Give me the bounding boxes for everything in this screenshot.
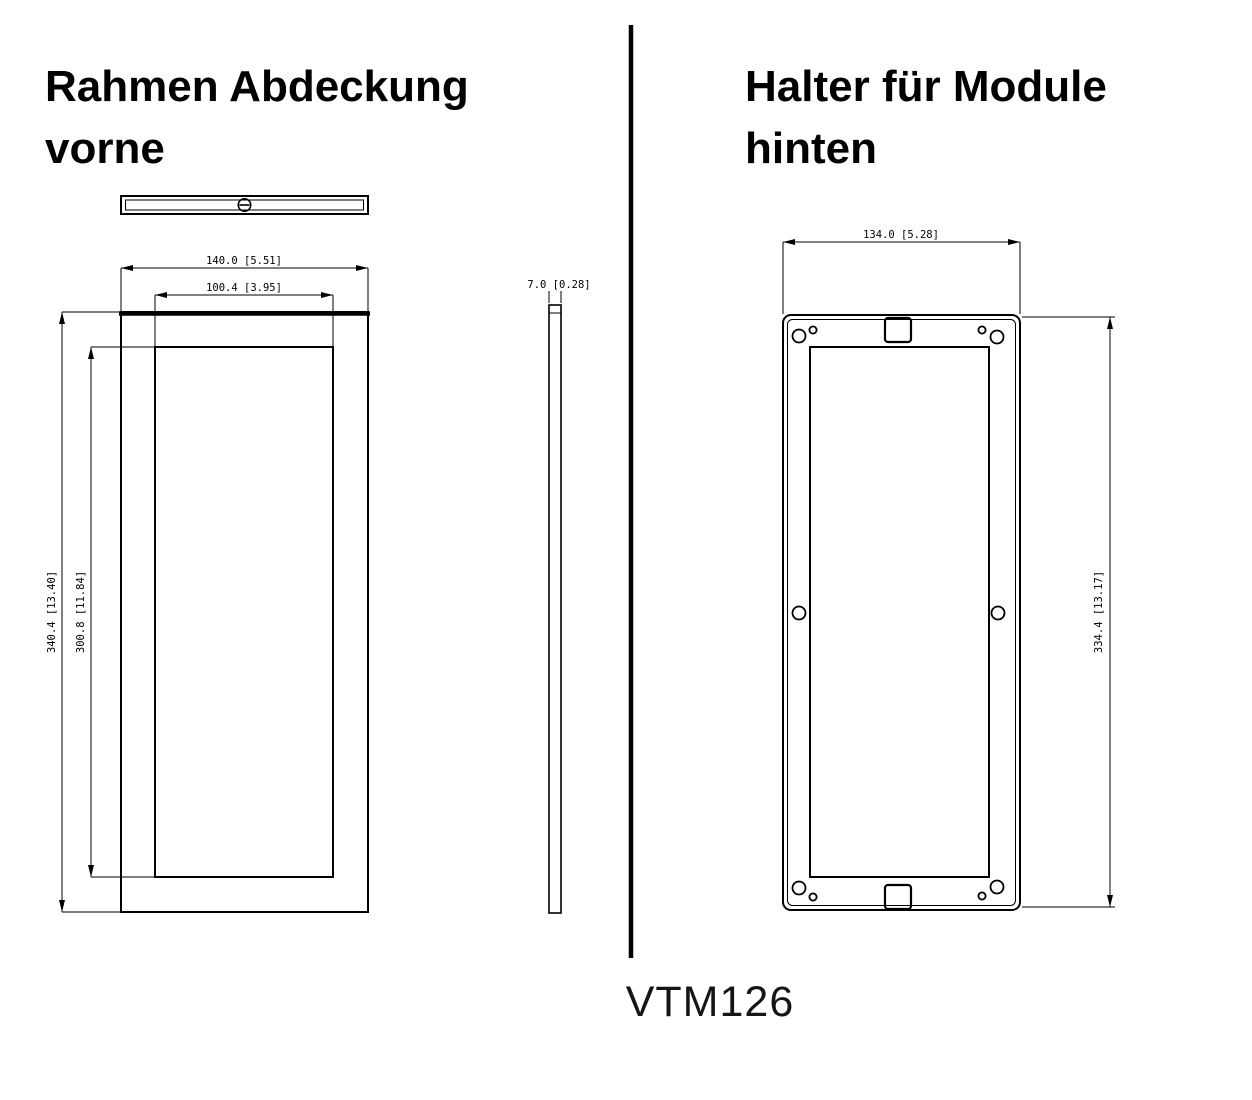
rear-body-inner-outline (788, 320, 1016, 906)
dim-front-outer-height-label: 340.4 [13.40] (46, 571, 58, 653)
rear-inner-opening (810, 347, 989, 877)
front-top-edge-view (121, 196, 368, 214)
front-view (62, 196, 370, 912)
rear-body-outline (783, 315, 1020, 910)
screw-hole-top-left-small (809, 326, 816, 333)
screw-hole-bottom-right-small (978, 892, 985, 899)
rear-top-notch (885, 318, 911, 342)
dim-front-inner-width (155, 295, 333, 346)
screw-hole-bottom-left-large (793, 882, 806, 895)
dim-thickness (549, 291, 561, 303)
dim-rear-height-label: 334.4 [13.17] (1093, 571, 1105, 653)
screw-hole-bottom-left-small (809, 893, 816, 900)
dim-front-outer-width-label: 140.0 [5.51] (206, 255, 282, 267)
dim-rear-width (783, 242, 1020, 314)
product-code-label: VTM126 (560, 978, 860, 1027)
rear-view (783, 242, 1115, 910)
technical-drawing-svg: 140.0 [5.51] 100.4 [3.95] 340.4 [13.40] … (0, 0, 1252, 1100)
screw-hole-top-right-large (991, 331, 1004, 344)
screw-hole-mid-left (793, 607, 806, 620)
dim-rear-width-label: 134.0 [5.28] (863, 229, 939, 241)
screw-hole-mid-right (992, 607, 1005, 620)
side-profile-outline (549, 305, 561, 913)
dim-front-inner-height (91, 347, 154, 877)
screw-hole-top-right-small (978, 326, 985, 333)
dim-thickness-label: 7.0 [0.28] (527, 279, 590, 291)
side-profile-view (549, 291, 561, 913)
dim-front-inner-height-label: 300.8 [11.84] (75, 571, 87, 653)
front-inner-recess (155, 347, 333, 877)
front-outer-frame (121, 312, 368, 912)
dim-front-inner-width-label: 100.4 [3.95] (206, 282, 282, 294)
page-background: Rahmen Abdeckung vorne Halter für Module… (0, 0, 1252, 1100)
screw-hole-top-left-large (793, 330, 806, 343)
screw-hole-bottom-right-large (991, 881, 1004, 894)
